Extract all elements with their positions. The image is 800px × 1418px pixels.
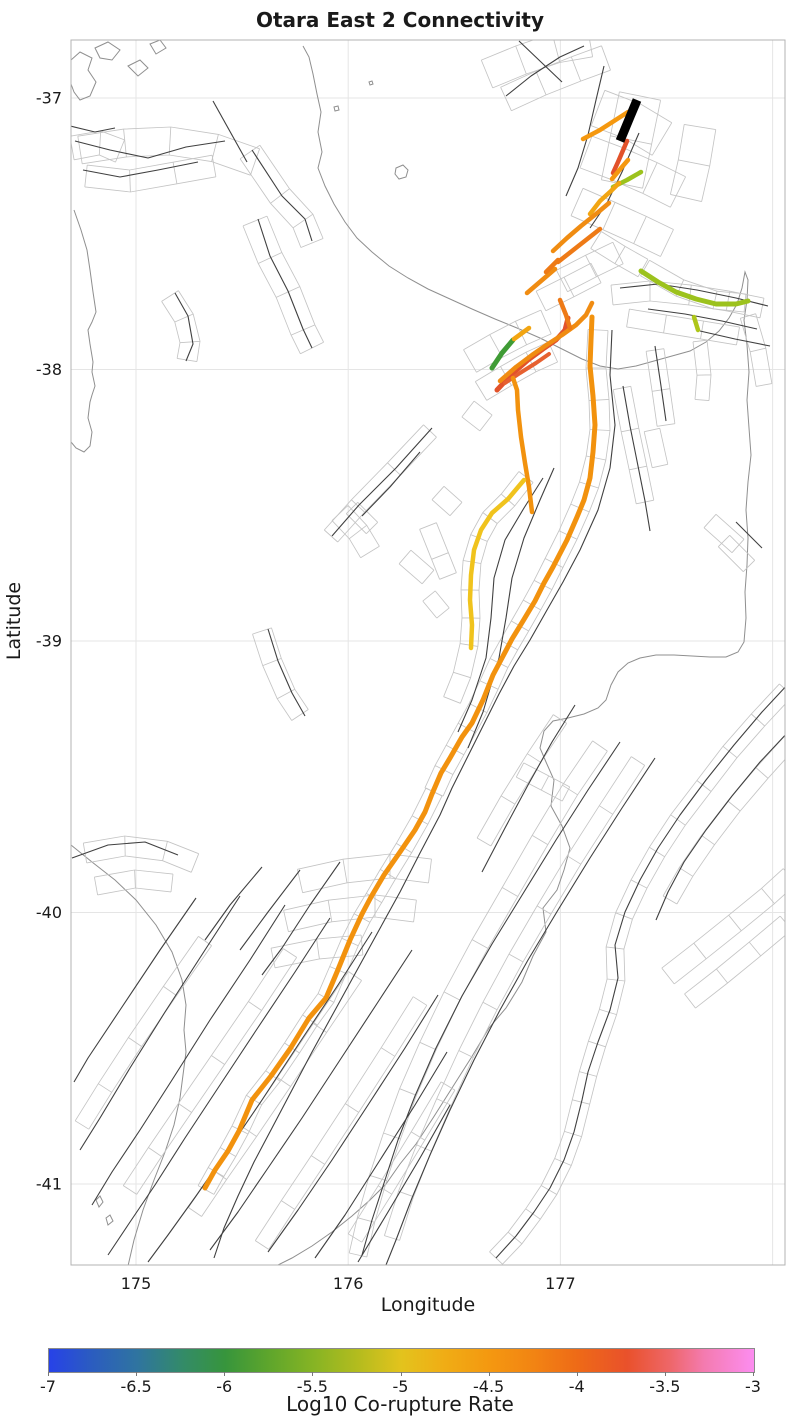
fault-section-chain (557, 242, 624, 292)
fault-section-chain (462, 401, 492, 431)
fault-trace (362, 452, 420, 516)
colorbar-tick (665, 1372, 666, 1376)
fault-trace (210, 950, 412, 1250)
fault-section-chain (662, 869, 797, 984)
colorbar-tick (577, 1372, 578, 1376)
island-outline (334, 106, 339, 111)
co-rupture-trace (641, 271, 748, 304)
colorbar-tick (224, 1372, 225, 1376)
y-tick-labels: -37-38-39-40-41 (36, 89, 62, 1194)
fault-section-chain (444, 472, 533, 704)
fault-section-layer (70, 27, 797, 1264)
fault-section-chain (243, 216, 324, 354)
island-outline (128, 60, 148, 76)
y-tick-label: -39 (36, 632, 62, 651)
fault-trace (175, 293, 193, 361)
y-tick-label: -40 (36, 903, 62, 922)
coastline-layer (71, 40, 751, 1266)
x-tick-label: 176 (333, 1274, 364, 1293)
fault-section-chain (516, 763, 569, 801)
co-rupture-layer (205, 112, 748, 1188)
fault-trace (332, 428, 432, 536)
y-tick-label: -41 (36, 1175, 62, 1194)
map-plot: 175176177-37-38-39-40-41 (0, 0, 800, 1418)
fault-trace (506, 46, 584, 96)
fault-section-chain (349, 741, 607, 1257)
gridlines (71, 40, 785, 1265)
co-rupture-trace (558, 229, 600, 262)
y-tick-label: -37 (36, 89, 62, 108)
coastline (276, 46, 751, 1266)
fault-section-chain (718, 535, 754, 571)
fault-section-chain (346, 502, 377, 533)
x-tick-label: 177 (545, 1274, 576, 1293)
fault-section-chain (75, 936, 211, 1129)
island-outline (150, 40, 166, 54)
fault-section-chain (423, 591, 449, 618)
fault-section-chain (432, 486, 462, 515)
island-outline (106, 1215, 113, 1225)
fault-trace (655, 346, 666, 421)
fault-trace (80, 896, 240, 1150)
coastline (71, 845, 186, 1266)
colorbar-tick (136, 1372, 137, 1376)
co-rupture-trace (527, 269, 555, 293)
fault-section-chain (83, 836, 198, 872)
co-rupture-trace (205, 317, 595, 1188)
colorbar (48, 1348, 755, 1373)
fault-section-chain (663, 737, 796, 904)
fault-section-chain (646, 349, 675, 427)
fault-trace (74, 898, 196, 1082)
island-outline (369, 81, 373, 85)
colorbar-tick (48, 1372, 49, 1376)
fault-section-chain (399, 550, 434, 584)
fault-trace-layer (70, 41, 790, 1265)
fault-trace (148, 932, 372, 1262)
colorbar-tick (489, 1372, 490, 1376)
fault-trace (268, 629, 305, 716)
fault-section-chain (297, 854, 431, 893)
colorbar-tick (401, 1372, 402, 1376)
coastline (71, 52, 96, 100)
fault-section-chain (162, 291, 200, 362)
fault-section-chain (693, 340, 711, 400)
fault-trace (205, 867, 262, 940)
colorbar-label: Log10 Co-rupture Rate (0, 1392, 800, 1416)
fault-trace (108, 918, 330, 1255)
fault-trace (482, 705, 575, 872)
fault-section-chain (123, 949, 296, 1195)
island-outline (395, 165, 408, 179)
map-content (70, 27, 797, 1266)
coastline (71, 210, 96, 452)
fault-section-chain (501, 46, 611, 111)
fault-trace (386, 758, 655, 1265)
colorbar-tick (312, 1372, 313, 1376)
fault-trace (268, 995, 438, 1252)
fault-trace (362, 742, 620, 1255)
fault-section-chain (420, 523, 457, 580)
colorbar-tick (753, 1372, 754, 1376)
fault-trace (214, 330, 615, 1258)
fault-section-chain (198, 788, 442, 1194)
fault-section-chain (284, 895, 417, 932)
fault-section-chain (255, 997, 426, 1250)
target-fault-trace (620, 100, 637, 141)
x-tick-label: 175 (121, 1274, 152, 1293)
fault-section-chain (670, 124, 715, 201)
fault-section-chain (685, 916, 792, 1008)
island-outline (95, 42, 120, 60)
fault-trace (258, 219, 312, 348)
x-axis-label: Longitude (28, 1294, 800, 1316)
y-tick-label: -38 (36, 360, 62, 379)
plot-border (71, 40, 785, 1265)
fault-section-chain (644, 428, 668, 467)
fault-section-chain (704, 514, 744, 552)
fault-section-chain (384, 757, 644, 1241)
fault-trace (83, 162, 198, 177)
fault-trace (213, 101, 247, 162)
figure: Otara East 2 Connectivity Latitude 17517… (0, 0, 800, 1418)
co-rupture-trace (694, 317, 698, 330)
x-tick-labels: 175176177 (121, 1274, 576, 1293)
